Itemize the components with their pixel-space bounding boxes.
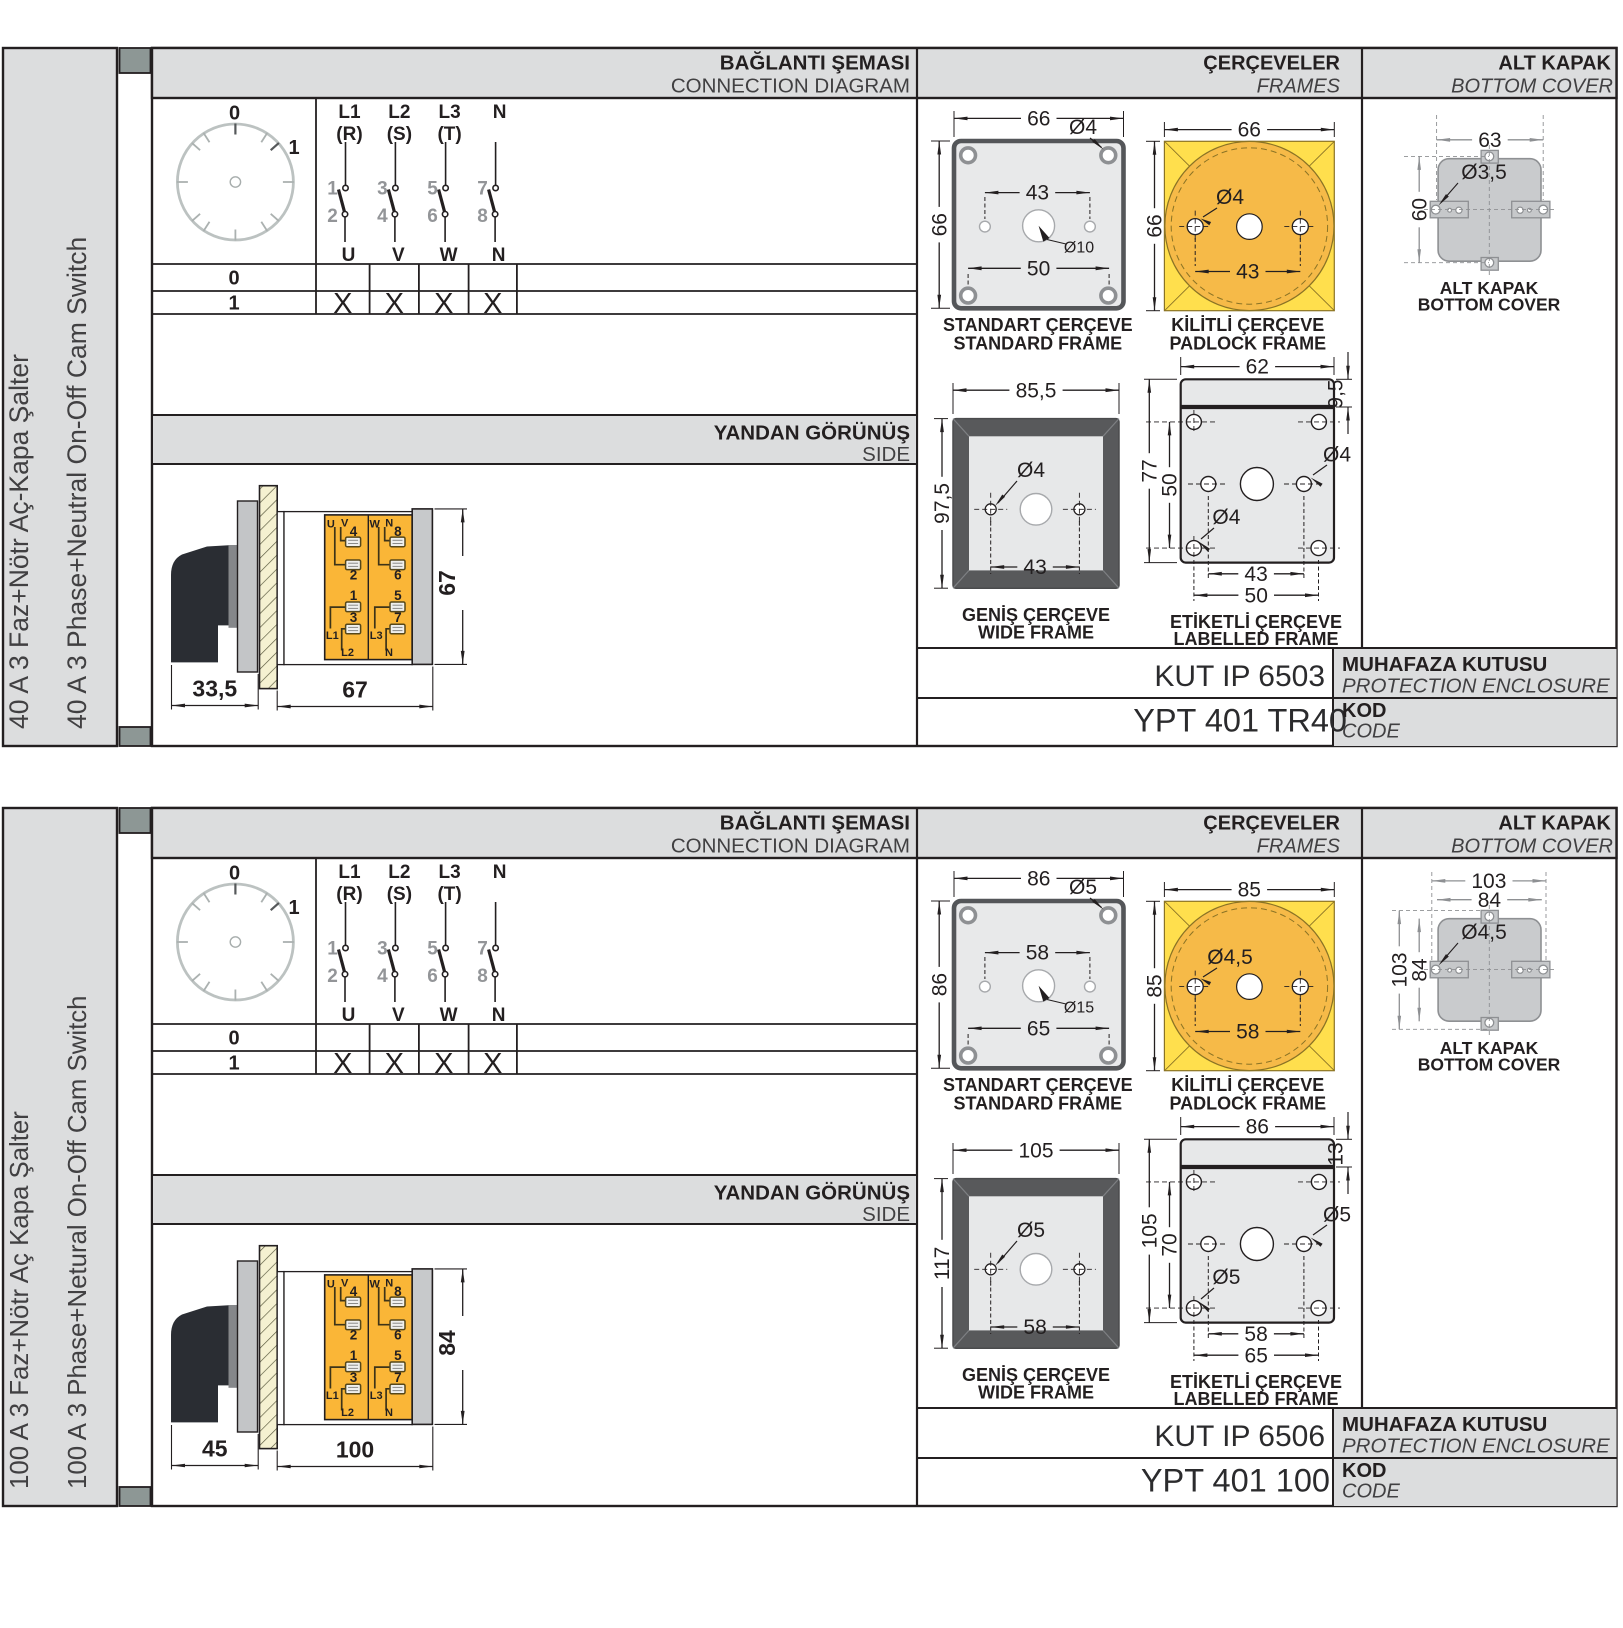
svg-text:3: 3	[350, 610, 358, 625]
svg-text:40 A 3 Faz+Nötr Aç-Kapa Şalter: 40 A 3 Faz+Nötr Aç-Kapa Şalter	[4, 354, 34, 729]
svg-text:(S): (S)	[387, 124, 412, 145]
svg-text:SIDE: SIDE	[862, 1203, 910, 1226]
svg-text:2: 2	[350, 1327, 358, 1342]
svg-text:N: N	[492, 245, 506, 266]
svg-text:117: 117	[931, 1247, 954, 1280]
svg-text:L3: L3	[439, 102, 461, 123]
svg-text:2: 2	[327, 966, 338, 987]
svg-text:58: 58	[1244, 1323, 1267, 1346]
svg-text:86: 86	[928, 973, 951, 996]
svg-text:1: 1	[327, 179, 338, 200]
svg-text:U: U	[342, 1005, 356, 1026]
svg-text:8: 8	[394, 524, 402, 539]
svg-text:70: 70	[1159, 1233, 1182, 1256]
svg-text:67: 67	[342, 677, 368, 703]
svg-text:KOD: KOD	[1342, 700, 1386, 722]
svg-text:STANDARD FRAME: STANDARD FRAME	[953, 1094, 1122, 1114]
svg-text:YANDAN GÖRÜNÜŞ: YANDAN GÖRÜNÜŞ	[714, 422, 910, 445]
svg-text:L2: L2	[341, 1407, 354, 1419]
svg-text:W: W	[440, 245, 458, 266]
svg-text:N: N	[385, 518, 393, 530]
svg-text:1: 1	[350, 588, 358, 603]
svg-text:105: 105	[1018, 1139, 1053, 1162]
svg-text:FRAMES: FRAMES	[1257, 76, 1341, 98]
svg-text:BOTTOM COVER: BOTTOM COVER	[1451, 836, 1613, 858]
svg-text:MUHAFAZA KUTUSU: MUHAFAZA KUTUSU	[1342, 1413, 1547, 1436]
svg-text:STANDART ÇERÇEVE: STANDART ÇERÇEVE	[943, 315, 1133, 335]
svg-text:84: 84	[1408, 958, 1431, 982]
svg-text:L1: L1	[326, 1390, 339, 1402]
svg-text:FRAMES: FRAMES	[1257, 836, 1341, 858]
svg-text:U: U	[327, 1279, 335, 1291]
svg-text:2: 2	[327, 206, 338, 227]
svg-text:ALT KAPAK: ALT KAPAK	[1498, 53, 1611, 75]
svg-text:U: U	[342, 245, 356, 266]
svg-text:YPT 401 100: YPT 401 100	[1141, 1463, 1330, 1499]
svg-text:X: X	[483, 288, 502, 320]
svg-text:BAĞLANTI ŞEMASI: BAĞLANTI ŞEMASI	[720, 811, 910, 835]
svg-text:3: 3	[377, 179, 388, 200]
svg-text:40 A 3 Phase+Neutral On-Off Ca: 40 A 3 Phase+Neutral On-Off Cam Switch	[62, 237, 92, 729]
svg-text:CONNECTION DIAGRAM: CONNECTION DIAGRAM	[671, 835, 910, 858]
svg-text:BOTTOM COVER: BOTTOM COVER	[1451, 76, 1613, 98]
svg-text:97,5: 97,5	[931, 483, 954, 524]
svg-text:58: 58	[1236, 1021, 1259, 1044]
svg-text:Ø10: Ø10	[1064, 240, 1094, 257]
svg-text:3: 3	[350, 1370, 358, 1385]
svg-text:X: X	[333, 288, 352, 320]
svg-text:W: W	[440, 1005, 458, 1026]
svg-text:66: 66	[1238, 119, 1261, 142]
svg-text:1: 1	[228, 293, 239, 315]
svg-text:V: V	[392, 1005, 405, 1026]
svg-text:WIDE FRAME: WIDE FRAME	[978, 1383, 1094, 1403]
svg-text:60: 60	[1408, 198, 1431, 221]
svg-text:N: N	[492, 1005, 506, 1026]
svg-text:L1: L1	[338, 102, 361, 123]
svg-text:PROTECTION ENCLOSURE: PROTECTION ENCLOSURE	[1342, 1435, 1610, 1458]
svg-text:STANDART ÇERÇEVE: STANDART ÇERÇEVE	[943, 1075, 1133, 1095]
svg-text:Ø4: Ø4	[1323, 444, 1351, 467]
svg-text:1: 1	[288, 897, 299, 919]
svg-text:X: X	[483, 1048, 502, 1080]
svg-text:Ø5: Ø5	[1017, 1219, 1045, 1242]
svg-text:8: 8	[477, 206, 488, 227]
svg-text:43: 43	[1236, 261, 1259, 284]
svg-text:5: 5	[394, 588, 402, 603]
svg-text:0: 0	[229, 863, 240, 885]
svg-text:Ø15: Ø15	[1064, 1000, 1094, 1017]
svg-text:5: 5	[394, 1348, 402, 1363]
svg-text:50: 50	[1245, 584, 1268, 607]
svg-text:CONNECTION DIAGRAM: CONNECTION DIAGRAM	[671, 75, 910, 98]
svg-text:8: 8	[394, 1284, 402, 1299]
svg-text:Ø4: Ø4	[1212, 506, 1240, 529]
svg-text:KOD: KOD	[1342, 1460, 1386, 1482]
svg-text:62: 62	[1246, 356, 1269, 379]
svg-text:84: 84	[434, 1330, 460, 1356]
svg-text:BOTTOM COVER: BOTTOM COVER	[1418, 295, 1561, 315]
svg-text:2: 2	[350, 567, 358, 582]
svg-text:5: 5	[427, 939, 438, 960]
svg-text:WIDE FRAME: WIDE FRAME	[978, 623, 1094, 643]
svg-text:X: X	[434, 1048, 453, 1080]
svg-text:(S): (S)	[387, 884, 412, 905]
svg-text:1: 1	[350, 1348, 358, 1363]
svg-text:58: 58	[1023, 1316, 1046, 1339]
svg-text:1: 1	[288, 137, 299, 159]
svg-text:86: 86	[1027, 868, 1050, 891]
svg-text:5: 5	[427, 179, 438, 200]
svg-text:8: 8	[477, 966, 488, 987]
svg-text:(R): (R)	[336, 124, 362, 145]
svg-text:6: 6	[427, 966, 438, 987]
svg-text:0: 0	[228, 1028, 239, 1050]
svg-text:100 A 3 Faz+Nötr Aç Kapa Şalte: 100 A 3 Faz+Nötr Aç Kapa Şalter	[6, 1111, 34, 1489]
svg-text:L1: L1	[326, 630, 339, 642]
svg-text:0: 0	[229, 103, 240, 125]
svg-text:V: V	[341, 518, 349, 530]
svg-text:4: 4	[377, 206, 388, 227]
svg-text:4: 4	[377, 966, 388, 987]
svg-text:ÇERÇEVELER: ÇERÇEVELER	[1203, 53, 1340, 75]
svg-text:X: X	[385, 1048, 404, 1080]
svg-text:1: 1	[327, 939, 338, 960]
svg-text:N: N	[385, 1407, 393, 1419]
svg-text:6: 6	[394, 1327, 402, 1342]
svg-text:KUT IP 6506: KUT IP 6506	[1154, 1420, 1325, 1453]
svg-text:PADLOCK FRAME: PADLOCK FRAME	[1169, 334, 1326, 354]
svg-text:BAĞLANTI ŞEMASI: BAĞLANTI ŞEMASI	[720, 51, 910, 75]
svg-text:43: 43	[1244, 563, 1267, 586]
svg-text:KİLİTLİ ÇERÇEVE: KİLİTLİ ÇERÇEVE	[1171, 1075, 1324, 1095]
svg-text:Ø4: Ø4	[1017, 459, 1045, 482]
svg-text:(T): (T)	[437, 124, 461, 145]
svg-text:58: 58	[1026, 942, 1049, 965]
svg-text:L1: L1	[338, 862, 361, 883]
svg-text:N: N	[385, 647, 393, 659]
svg-text:45: 45	[202, 1436, 228, 1462]
svg-text:Ø3,5: Ø3,5	[1461, 161, 1507, 184]
svg-text:LABELLED FRAME: LABELLED FRAME	[1174, 629, 1339, 649]
svg-text:67: 67	[434, 570, 460, 596]
svg-text:ALT KAPAK: ALT KAPAK	[1498, 813, 1611, 835]
svg-text:X: X	[333, 1048, 352, 1080]
svg-text:Ø4,5: Ø4,5	[1461, 921, 1507, 944]
svg-text:V: V	[392, 245, 405, 266]
svg-text:7: 7	[477, 179, 488, 200]
svg-text:85: 85	[1238, 879, 1261, 902]
svg-text:ÇERÇEVELER: ÇERÇEVELER	[1203, 813, 1340, 835]
svg-text:(R): (R)	[336, 884, 362, 905]
svg-text:CODE: CODE	[1342, 721, 1400, 743]
svg-text:66: 66	[1144, 214, 1167, 237]
svg-text:85,5: 85,5	[1016, 379, 1057, 402]
svg-text:85: 85	[1144, 974, 1167, 997]
svg-text:YPT 401 TR40: YPT 401 TR40	[1133, 703, 1347, 739]
svg-text:66: 66	[1027, 108, 1050, 131]
svg-text:3: 3	[377, 939, 388, 960]
svg-text:33,5: 33,5	[192, 676, 237, 702]
svg-text:STANDARD FRAME: STANDARD FRAME	[953, 334, 1122, 354]
svg-text:66: 66	[928, 213, 951, 236]
svg-text:43: 43	[1023, 556, 1046, 579]
svg-text:50: 50	[1159, 473, 1182, 496]
svg-text:BOTTOM COVER: BOTTOM COVER	[1418, 1055, 1561, 1075]
svg-text:L2: L2	[341, 647, 354, 659]
svg-text:KUT IP 6503: KUT IP 6503	[1154, 660, 1325, 693]
svg-text:L3: L3	[370, 1390, 383, 1402]
svg-text:100 A 3 Phase+Netural On-Off C: 100 A 3 Phase+Netural On-Off Cam Switch	[64, 995, 92, 1489]
svg-text:Ø4: Ø4	[1069, 116, 1097, 139]
svg-text:W: W	[370, 519, 381, 531]
svg-text:SIDE: SIDE	[862, 443, 910, 466]
svg-text:Ø4,5: Ø4,5	[1207, 946, 1253, 969]
svg-text:Ø5: Ø5	[1212, 1266, 1240, 1289]
svg-text:50: 50	[1027, 257, 1050, 280]
svg-text:84: 84	[1478, 889, 1502, 912]
svg-text:V: V	[341, 1278, 349, 1290]
svg-text:6: 6	[394, 567, 402, 582]
svg-text:0: 0	[228, 268, 239, 290]
svg-text:LABELLED FRAME: LABELLED FRAME	[1174, 1389, 1339, 1409]
svg-text:100: 100	[336, 1437, 374, 1463]
svg-text:6: 6	[427, 206, 438, 227]
svg-text:1: 1	[228, 1053, 239, 1075]
svg-text:L3: L3	[370, 630, 383, 642]
svg-text:Ø5: Ø5	[1069, 876, 1097, 899]
svg-text:L3: L3	[439, 862, 461, 883]
svg-text:CODE: CODE	[1342, 1481, 1400, 1503]
svg-text:4: 4	[350, 1284, 358, 1299]
svg-text:Ø5: Ø5	[1323, 1204, 1351, 1227]
svg-text:U: U	[327, 519, 335, 531]
svg-text:X: X	[434, 288, 453, 320]
svg-text:N: N	[385, 1278, 393, 1290]
svg-text:7: 7	[477, 939, 488, 960]
svg-text:86: 86	[1246, 1116, 1269, 1139]
svg-text:KİLİTLİ ÇERÇEVE: KİLİTLİ ÇERÇEVE	[1171, 315, 1324, 335]
svg-text:MUHAFAZA KUTUSU: MUHAFAZA KUTUSU	[1342, 653, 1547, 676]
svg-text:65: 65	[1027, 1017, 1050, 1040]
svg-text:N: N	[493, 102, 507, 123]
svg-text:X: X	[385, 288, 404, 320]
svg-text:63: 63	[1478, 129, 1501, 152]
svg-text:65: 65	[1245, 1344, 1268, 1367]
svg-text:43: 43	[1026, 182, 1049, 205]
svg-text:PADLOCK FRAME: PADLOCK FRAME	[1169, 1094, 1326, 1114]
svg-text:13: 13	[1325, 1142, 1348, 1165]
svg-text:YANDAN GÖRÜNÜŞ: YANDAN GÖRÜNÜŞ	[714, 1182, 910, 1205]
svg-text:W: W	[370, 1279, 381, 1291]
svg-text:L2: L2	[388, 102, 410, 123]
svg-text:7: 7	[394, 610, 402, 625]
svg-text:L2: L2	[388, 862, 410, 883]
svg-text:N: N	[493, 862, 507, 883]
svg-text:7: 7	[394, 1370, 402, 1385]
svg-text:(T): (T)	[437, 884, 461, 905]
svg-text:4: 4	[350, 524, 358, 539]
svg-text:9,5: 9,5	[1325, 379, 1348, 408]
svg-text:Ø4: Ø4	[1216, 186, 1244, 209]
svg-text:PROTECTION ENCLOSURE: PROTECTION ENCLOSURE	[1342, 675, 1610, 698]
